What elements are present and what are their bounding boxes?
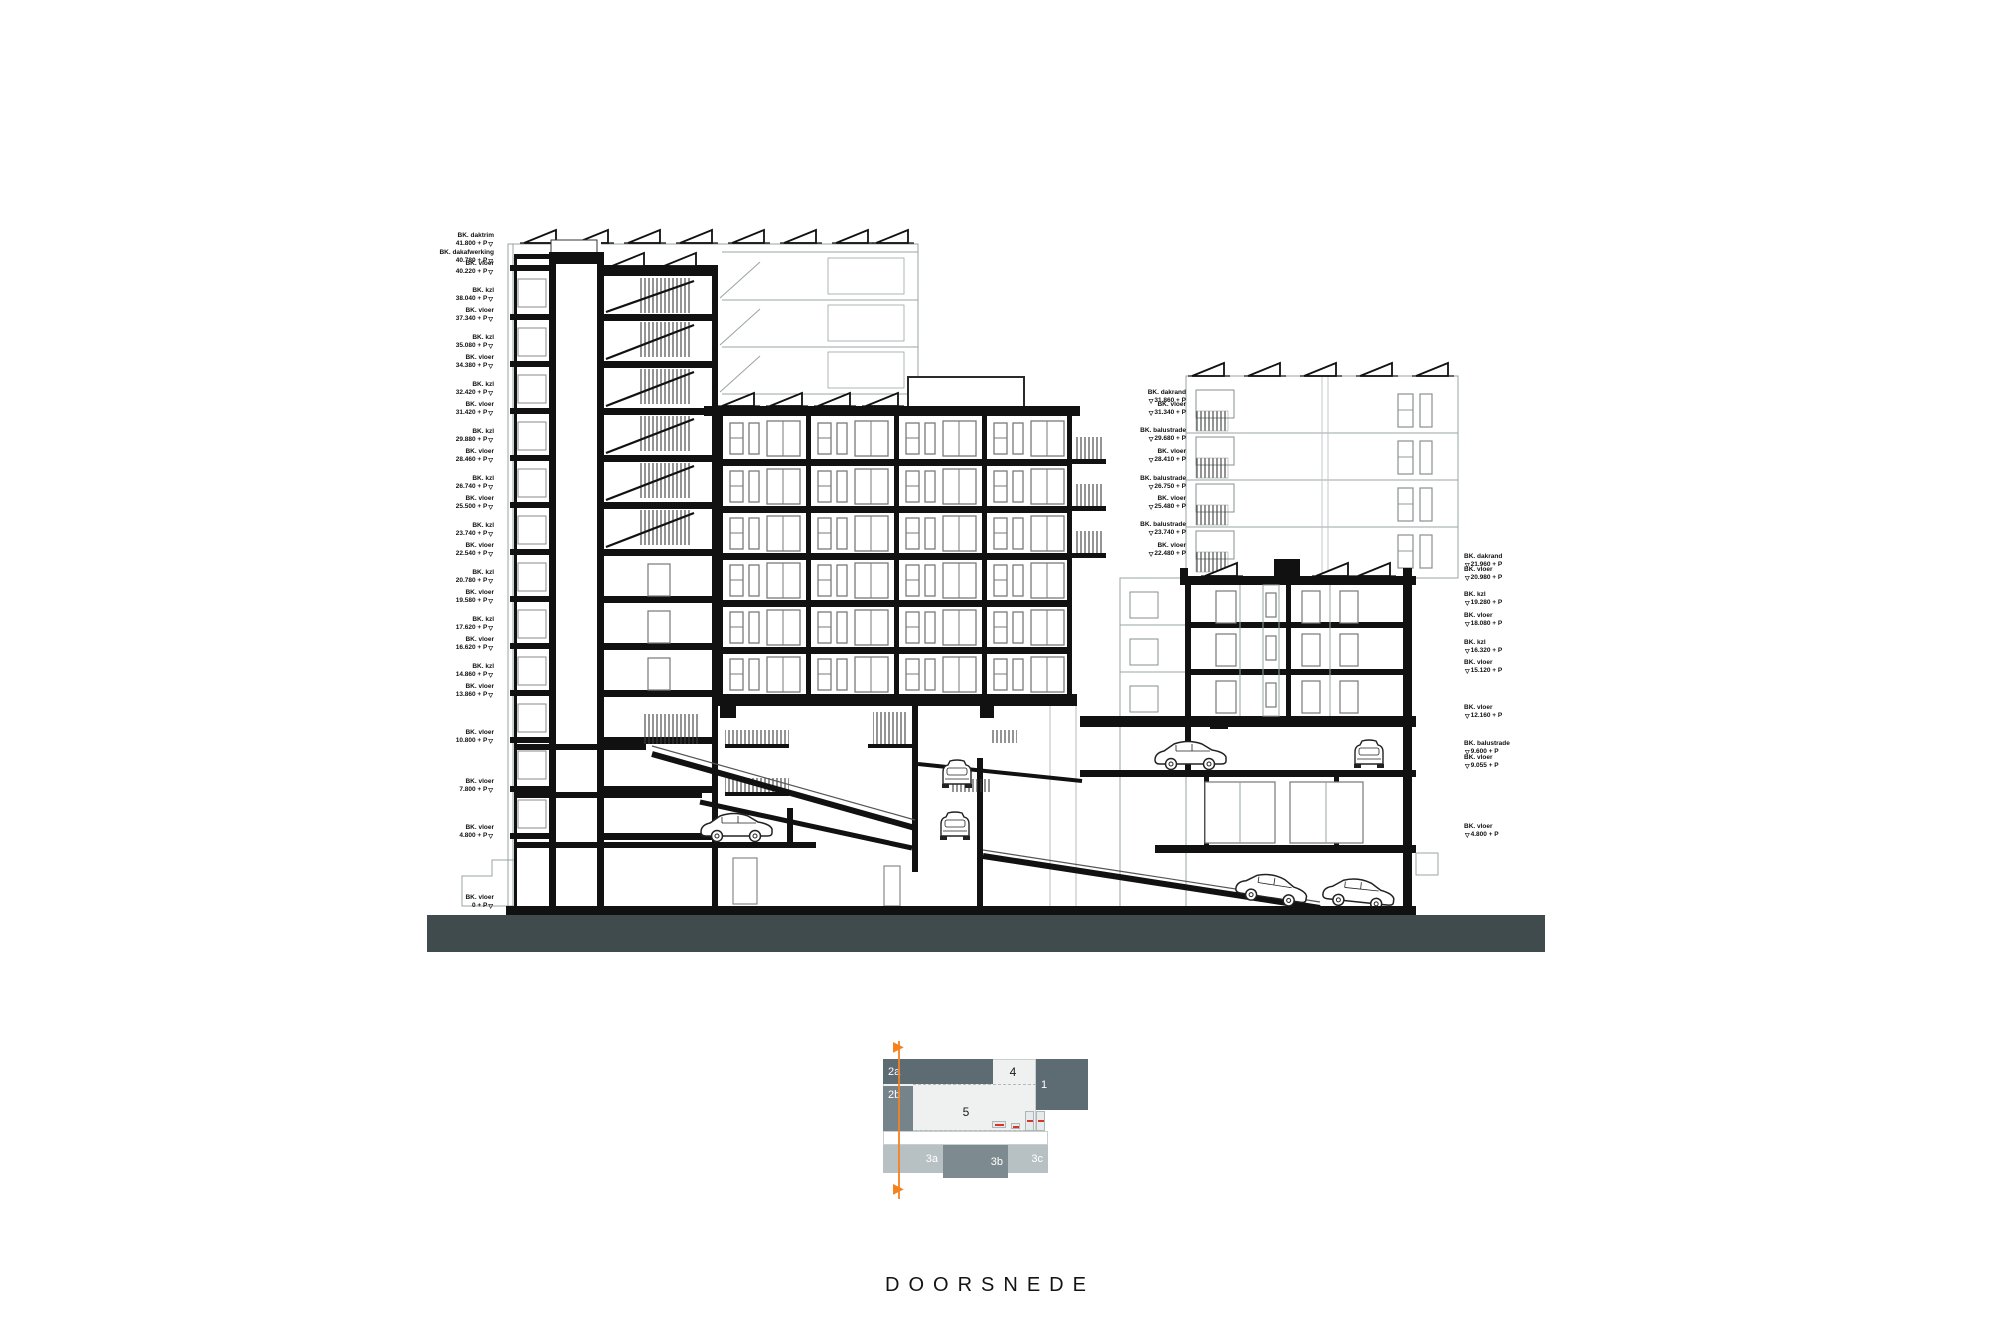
level-name: BK. vloer xyxy=(418,589,494,597)
section-cut-arrow-bottom: ▶ xyxy=(893,1181,909,1197)
level-marker-icon: ▽ xyxy=(487,391,494,397)
level-value: 28.460 + P xyxy=(456,456,488,463)
elevation-label: BK. vloer ▽18.080 + P xyxy=(1464,612,1560,629)
level-name: BK. vloer xyxy=(418,495,494,503)
elevation-label: BK. vloer 7.800 + P▽ xyxy=(418,778,494,795)
level-name: BK. vloer xyxy=(418,778,494,786)
level-name: BK. vloer xyxy=(418,260,494,268)
level-marker-icon: ▽ xyxy=(487,317,494,323)
level-marker-icon: ▽ xyxy=(1464,669,1471,675)
level-marker-icon: ▽ xyxy=(487,344,494,350)
level-name: BK. vloer xyxy=(418,636,494,644)
level-value: 25.480 + P xyxy=(1154,503,1186,510)
level-name: BK. kzl xyxy=(1464,639,1560,647)
level-name: BK. vloer xyxy=(418,894,494,902)
level-value: 32.420 + P xyxy=(456,389,488,396)
level-name: BK. vloer xyxy=(418,354,494,362)
keyplan-block-1: 1 xyxy=(1036,1059,1088,1110)
elevation-label: BK. kzl 14.860 + P▽ xyxy=(418,663,494,680)
level-value: 22.480 + P xyxy=(1154,550,1186,557)
level-name: BK. kzl xyxy=(418,334,494,342)
level-name: BK. vloer xyxy=(1464,823,1560,831)
level-name: BK. dakrand xyxy=(1100,389,1186,397)
level-name: BK. vloer xyxy=(1100,448,1186,456)
elevation-label: BK. vloer 10.800 + P▽ xyxy=(418,729,494,746)
level-marker-icon: ▽ xyxy=(487,788,494,794)
level-name: BK. kzl xyxy=(418,522,494,530)
level-name: BK. vloer xyxy=(418,683,494,691)
level-value: 23.740 + P xyxy=(456,530,488,537)
level-name: BK. balustrade xyxy=(1100,427,1186,435)
level-value: 19.280 + P xyxy=(1471,599,1503,606)
level-value: 19.580 + P xyxy=(456,597,488,604)
level-marker-icon: ▽ xyxy=(487,242,494,248)
level-name: BK. balustrade xyxy=(1464,740,1560,748)
elevation-label: BK. vloer ▽12.160 + P xyxy=(1464,704,1560,721)
level-marker-icon: ▽ xyxy=(487,458,494,464)
level-marker-icon: ▽ xyxy=(1464,649,1471,655)
section-cut-line xyxy=(898,1041,900,1199)
level-marker-icon: ▽ xyxy=(487,646,494,652)
level-name: BK. daktrim xyxy=(418,232,494,240)
level-marker-icon: ▽ xyxy=(1464,764,1471,770)
elevation-label: BK. vloer ▽20.980 + P xyxy=(1464,566,1560,583)
level-name: BK. balustrade xyxy=(1100,521,1186,529)
level-name: BK. dakafwerking xyxy=(418,249,494,257)
elevation-label: BK. kzl 20.780 + P▽ xyxy=(418,569,494,586)
elevation-label: BK. kzl 17.620 + P▽ xyxy=(418,616,494,633)
elevation-label: BK. vloer 19.580 + P▽ xyxy=(418,589,494,606)
elevation-label: BK. vloer 40.220 + P▽ xyxy=(418,260,494,277)
elevation-label: BK. balustrade ▽23.740 + P xyxy=(1100,521,1186,538)
level-marker-icon: ▽ xyxy=(487,626,494,632)
drawing-title: DOORSNEDE xyxy=(880,1274,1100,1297)
elevation-label: BK. daktrim 41.800 + P▽ xyxy=(418,232,494,249)
level-name: BK. kzl xyxy=(418,475,494,483)
level-value: 20.780 + P xyxy=(456,577,488,584)
elevation-label: BK. kzl 38.040 + P▽ xyxy=(418,287,494,304)
level-value: 34.380 + P xyxy=(456,362,488,369)
key-plan: 2a 2b 4 1 5 3a 3b 3c ▶ ▶ xyxy=(880,1036,1100,1211)
level-name: BK. vloer xyxy=(1464,612,1560,620)
level-marker-icon: ▽ xyxy=(1464,833,1471,839)
level-marker-icon: ▽ xyxy=(487,552,494,558)
elevation-label: BK. vloer 25.500 + P▽ xyxy=(418,495,494,512)
level-value: 38.040 + P xyxy=(456,295,488,302)
elevation-label: BK. vloer ▽15.120 + P xyxy=(1464,659,1560,676)
level-name: BK. vloer xyxy=(418,401,494,409)
keyplan-core-mark xyxy=(1011,1123,1020,1129)
level-value: 26.740 + P xyxy=(456,483,488,490)
section-cut-arrow-top: ▶ xyxy=(893,1039,909,1055)
level-name: BK. vloer xyxy=(1464,704,1560,712)
level-marker-icon: ▽ xyxy=(487,505,494,511)
level-name: BK. vloer xyxy=(1100,542,1186,550)
elevation-label: BK. kzl 29.880 + P▽ xyxy=(418,428,494,445)
level-value: 10.800 + P xyxy=(456,737,488,744)
level-marker-icon: ▽ xyxy=(487,297,494,303)
elevation-label: BK. vloer 22.540 + P▽ xyxy=(418,542,494,559)
level-marker-icon: ▽ xyxy=(487,834,494,840)
elevation-label: BK. kzl 32.420 + P▽ xyxy=(418,381,494,398)
elevation-label: BK. kzl ▽19.280 + P xyxy=(1464,591,1560,608)
elevation-label: BK. vloer ▽22.480 + P xyxy=(1100,542,1186,559)
elevation-label: BK. vloer 37.340 + P▽ xyxy=(418,307,494,324)
level-marker-icon: ▽ xyxy=(487,532,494,538)
level-value: 13.860 + P xyxy=(456,691,488,698)
level-marker-icon: ▽ xyxy=(487,364,494,370)
level-value: 16.620 + P xyxy=(456,644,488,651)
level-value: 28.410 + P xyxy=(1154,456,1186,463)
level-value: 15.120 + P xyxy=(1471,667,1503,674)
level-marker-icon: ▽ xyxy=(487,693,494,699)
level-value: 17.620 + P xyxy=(456,624,488,631)
level-marker-icon: ▽ xyxy=(487,270,494,276)
elevation-labels-left: BK. daktrim 41.800 + P▽ BK. dakafwerking… xyxy=(418,0,494,1000)
level-name: BK. kzl xyxy=(1464,591,1560,599)
level-marker-icon: ▽ xyxy=(487,673,494,679)
level-name: BK. vloer xyxy=(1100,495,1186,503)
keyplan-dashed-line xyxy=(913,1084,1036,1085)
level-name: BK. kzl xyxy=(418,569,494,577)
level-name: BK. vloer xyxy=(1464,659,1560,667)
elevation-label: BK. vloer ▽9.055 + P xyxy=(1464,754,1560,771)
elevation-label: BK. kzl 23.740 + P▽ xyxy=(418,522,494,539)
level-value: 23.740 + P xyxy=(1154,529,1186,536)
level-marker-icon: ▽ xyxy=(1464,576,1471,582)
elevation-label: BK. kzl ▽16.320 + P xyxy=(1464,639,1560,656)
level-value: 25.500 + P xyxy=(456,503,488,510)
level-value: 31.340 + P xyxy=(1154,409,1186,416)
level-value: 7.800 + P xyxy=(459,786,487,793)
level-value: 41.800 + P xyxy=(456,240,488,247)
level-marker-icon: ▽ xyxy=(487,411,494,417)
level-marker-icon: ▽ xyxy=(487,739,494,745)
keyplan-block-4: 4 xyxy=(993,1059,1033,1084)
level-value: 4.800 + P xyxy=(1471,831,1499,838)
level-value: 26.750 + P xyxy=(1154,483,1186,490)
keyplan-block-5: 5 xyxy=(946,1102,986,1122)
level-name: BK. vloer xyxy=(418,307,494,315)
level-name: BK. vloer xyxy=(1100,401,1186,409)
keyplan-core-mark xyxy=(1025,1111,1034,1131)
elevation-label: BK. vloer 0 + P▽ xyxy=(418,894,494,911)
level-marker-icon: ▽ xyxy=(1464,714,1471,720)
keyplan-block-3b: 3b xyxy=(943,1145,1008,1178)
level-name: BK. vloer xyxy=(418,824,494,832)
architectural-sheet: BK. daktrim 41.800 + P▽ BK. dakafwerking… xyxy=(0,0,2000,1333)
level-name: BK. vloer xyxy=(418,729,494,737)
level-value: 20.980 + P xyxy=(1471,574,1503,581)
level-value: 18.080 + P xyxy=(1471,620,1503,627)
level-marker-icon: ▽ xyxy=(487,485,494,491)
keyplan-core-mark xyxy=(1036,1111,1045,1131)
elevation-label: BK. vloer 4.800 + P▽ xyxy=(418,824,494,841)
keyplan-block-3a: 3a xyxy=(883,1145,943,1173)
elevation-labels-right: BK. dakrand ▽21.960 + P BK. vloer ▽20.98… xyxy=(1464,0,1560,1000)
level-value: 29.880 + P xyxy=(456,436,488,443)
level-marker-icon: ▽ xyxy=(1464,622,1471,628)
elevation-label: BK. kzl 26.740 + P▽ xyxy=(418,475,494,492)
level-name: BK. kzl xyxy=(418,616,494,624)
elevation-label: BK. vloer 13.860 + P▽ xyxy=(418,683,494,700)
keyplan-core-mark xyxy=(992,1121,1006,1128)
elevation-label: BK. vloer 28.460 + P▽ xyxy=(418,448,494,465)
level-value: 0 + P xyxy=(472,902,487,909)
level-marker-icon: ▽ xyxy=(487,904,494,910)
level-value: 35.080 + P xyxy=(456,342,488,349)
level-name: BK. vloer xyxy=(1464,754,1560,762)
level-name: BK. vloer xyxy=(1464,566,1560,574)
elevation-label: BK. vloer ▽25.480 + P xyxy=(1100,495,1186,512)
level-name: BK. balustrade xyxy=(1100,475,1186,483)
level-value: 22.540 + P xyxy=(456,550,488,557)
level-name: BK. dakrand xyxy=(1464,553,1560,561)
keyplan-block-3c: 3c xyxy=(1008,1145,1048,1173)
level-value: 37.340 + P xyxy=(456,315,488,322)
elevation-label: BK. vloer ▽28.410 + P xyxy=(1100,448,1186,465)
level-value: 14.860 + P xyxy=(456,671,488,678)
level-marker-icon: ▽ xyxy=(487,599,494,605)
level-value: 16.320 + P xyxy=(1471,647,1503,654)
level-value: 29.680 + P xyxy=(1154,435,1186,442)
level-marker-icon: ▽ xyxy=(487,438,494,444)
elevation-labels-middle: BK. dakrand ▽31.860 + P BK. vloer ▽31.34… xyxy=(1100,0,1186,1000)
level-value: 4.800 + P xyxy=(459,832,487,839)
level-value: 31.420 + P xyxy=(456,409,488,416)
level-name: BK. kzl xyxy=(418,381,494,389)
level-name: BK. vloer xyxy=(418,542,494,550)
elevation-label: BK. vloer 34.380 + P▽ xyxy=(418,354,494,371)
elevation-label: BK. balustrade ▽26.750 + P xyxy=(1100,475,1186,492)
elevation-label: BK. kzl 35.080 + P▽ xyxy=(418,334,494,351)
elevation-label: BK. balustrade ▽29.680 + P xyxy=(1100,427,1186,444)
elevation-label: BK. vloer ▽4.800 + P xyxy=(1464,823,1560,840)
level-name: BK. vloer xyxy=(418,448,494,456)
level-value: 9.055 + P xyxy=(1471,762,1499,769)
level-name: BK. kzl xyxy=(418,663,494,671)
elevation-label: BK. vloer ▽31.340 + P xyxy=(1100,401,1186,418)
level-name: BK. kzl xyxy=(418,428,494,436)
keyplan-lower-outline xyxy=(883,1131,1048,1145)
level-value: 40.220 + P xyxy=(456,268,488,275)
elevation-label: BK. vloer 31.420 + P▽ xyxy=(418,401,494,418)
elevation-label: BK. vloer 16.620 + P▽ xyxy=(418,636,494,653)
level-marker-icon: ▽ xyxy=(1464,601,1471,607)
level-marker-icon: ▽ xyxy=(487,579,494,585)
level-name: BK. kzl xyxy=(418,287,494,295)
level-value: 12.160 + P xyxy=(1471,712,1503,719)
